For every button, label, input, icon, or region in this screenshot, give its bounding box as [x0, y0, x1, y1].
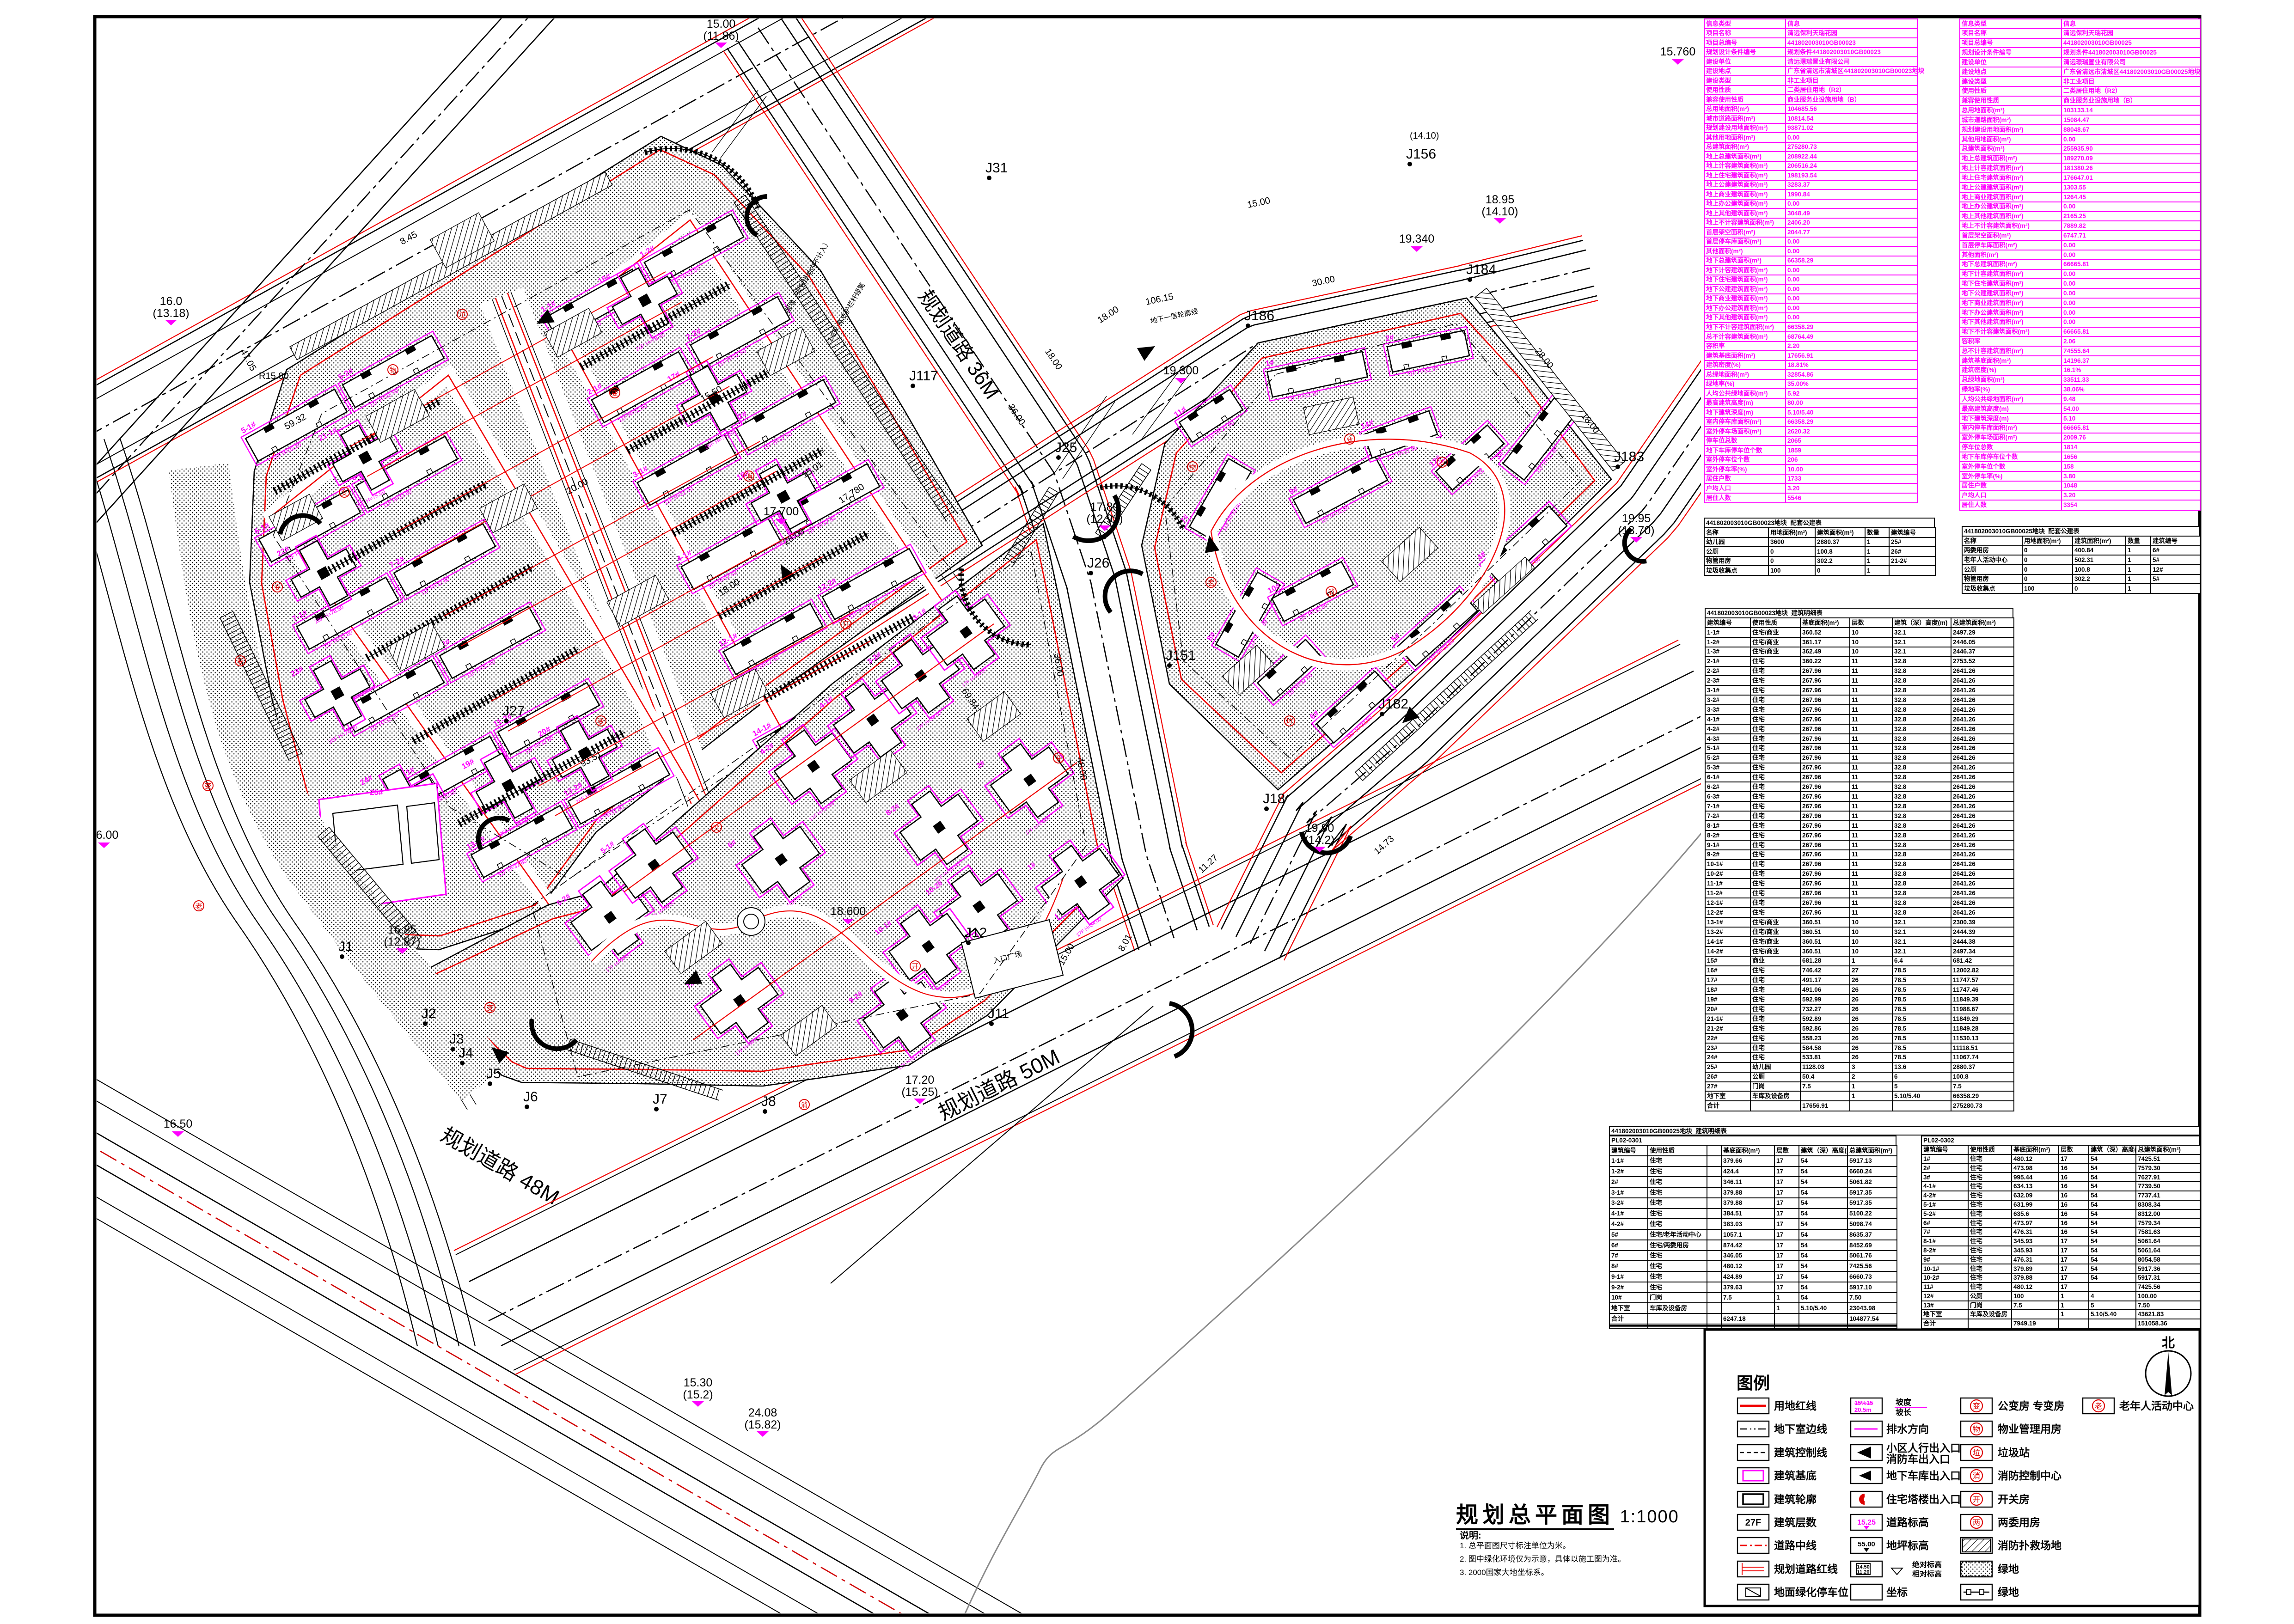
- svg-text:相对标高: 相对标高: [1912, 1569, 1942, 1578]
- svg-text:20.5m: 20.5m: [1854, 1406, 1872, 1413]
- svg-text:建筑基底: 建筑基底: [1774, 1470, 1817, 1482]
- svg-text:用地红线: 用地红线: [1774, 1400, 1817, 1412]
- svg-text:两委用房: 两委用房: [1998, 1516, 2040, 1528]
- svg-text:开关房: 开关房: [1998, 1493, 2030, 1505]
- svg-text:道路标高: 道路标高: [1886, 1516, 1929, 1528]
- svg-text:建筑层数: 建筑层数: [1774, 1516, 1817, 1528]
- svg-text:绿地: 绿地: [1998, 1563, 2019, 1575]
- svg-text:消防车出入口: 消防车出入口: [1886, 1453, 1950, 1465]
- svg-text:老年人活动中心: 老年人活动中心: [2119, 1400, 2194, 1412]
- svg-text:老: 老: [2095, 1402, 2102, 1410]
- svg-text:地面绿化停车位: 地面绿化停车位: [1774, 1586, 1848, 1598]
- svg-text:消防控制中心: 消防控制中心: [1998, 1470, 2062, 1482]
- svg-text:垃: 垃: [1973, 1449, 1980, 1457]
- svg-text:消: 消: [1973, 1472, 1980, 1480]
- svg-text:垃圾站: 垃圾站: [1998, 1447, 2030, 1459]
- svg-text:地下室边线: 地下室边线: [1774, 1423, 1827, 1435]
- svg-text:住宅塔楼出入口: 住宅塔楼出入口: [1886, 1493, 1961, 1505]
- svg-text:坐标: 坐标: [1886, 1586, 1908, 1598]
- svg-text:公变房 专变房: 公变房 专变房: [1998, 1400, 2064, 1412]
- svg-text:物: 物: [1973, 1425, 1980, 1434]
- svg-text:变: 变: [1973, 1402, 1980, 1410]
- svg-text:55.00: 55.00: [1858, 1540, 1875, 1548]
- svg-text:北: 北: [2162, 1336, 2175, 1350]
- svg-text:开: 开: [1973, 1496, 1980, 1504]
- svg-text:两: 两: [1973, 1519, 1980, 1527]
- svg-text:图例: 图例: [1737, 1374, 1770, 1392]
- svg-text:建筑控制线: 建筑控制线: [1774, 1447, 1827, 1459]
- svg-text:道路中线: 道路中线: [1774, 1539, 1817, 1551]
- svg-text:地坪标高: 地坪标高: [1886, 1539, 1929, 1551]
- svg-text:15%15: 15%15: [1854, 1399, 1873, 1406]
- svg-text:规划道路红线: 规划道路红线: [1774, 1563, 1838, 1575]
- svg-text:排水方向: 排水方向: [1886, 1423, 1929, 1435]
- svg-text:绿地: 绿地: [1998, 1586, 2019, 1598]
- svg-text:坡长: 坡长: [1896, 1408, 1912, 1417]
- svg-text:小区人行出入口: 小区人行出入口: [1886, 1442, 1961, 1454]
- svg-text:11.20: 11.20: [1857, 1569, 1870, 1575]
- svg-text:27F: 27F: [1745, 1518, 1761, 1528]
- svg-text:地下车库出入口: 地下车库出入口: [1886, 1470, 1961, 1482]
- svg-text:建筑轮廓: 建筑轮廓: [1774, 1493, 1817, 1505]
- svg-text:绝对标高: 绝对标高: [1912, 1560, 1942, 1569]
- svg-text:物业管理用房: 物业管理用房: [1998, 1423, 2062, 1435]
- svg-text:15.25: 15.25: [1857, 1519, 1876, 1526]
- svg-text:坡度: 坡度: [1896, 1398, 1912, 1407]
- svg-text:消防扑救场地: 消防扑救场地: [1998, 1539, 2062, 1551]
